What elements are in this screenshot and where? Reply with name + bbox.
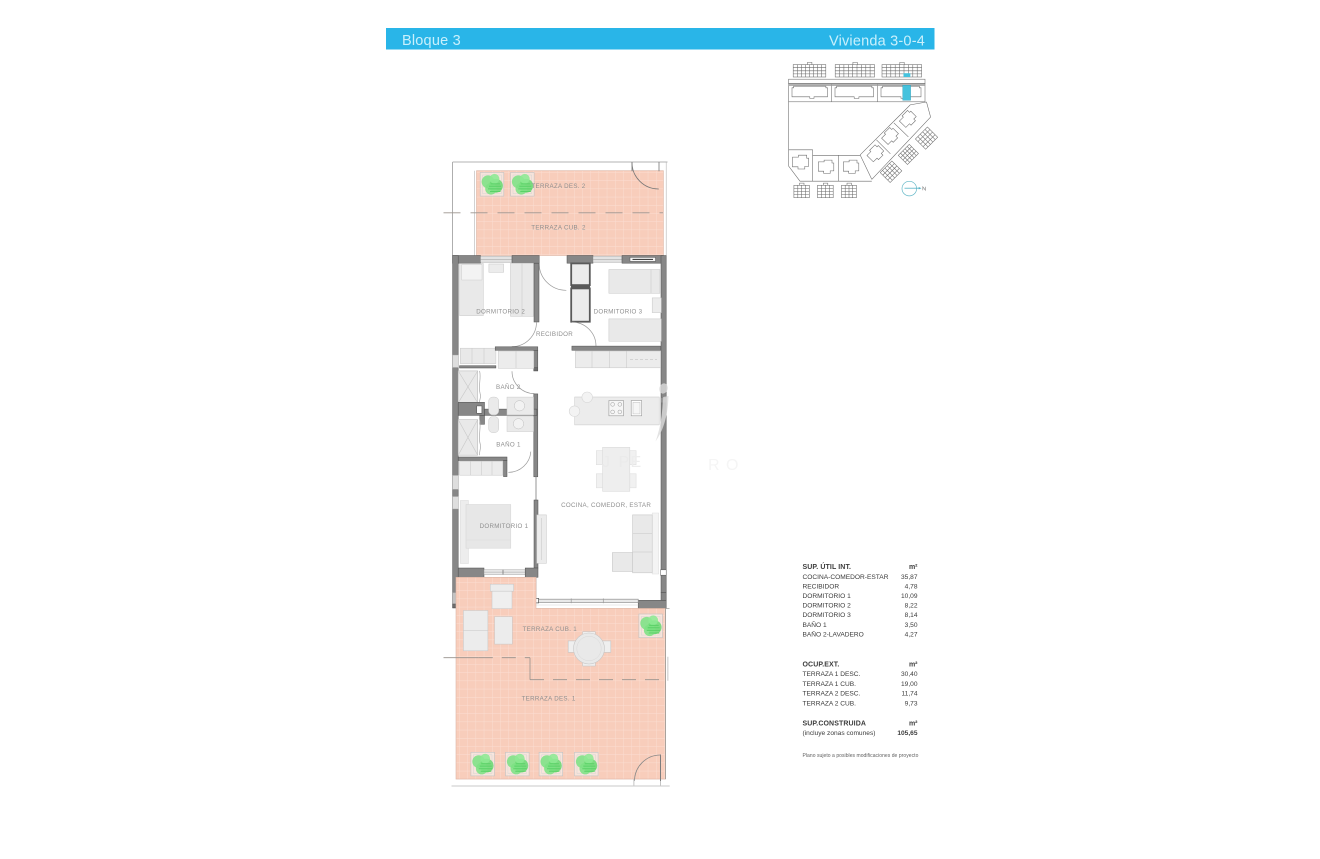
svg-text:E: E bbox=[631, 454, 642, 471]
svg-text:9,73: 9,73 bbox=[905, 701, 918, 708]
svg-text:TERRAZA 1 DESC.: TERRAZA 1 DESC. bbox=[803, 671, 861, 678]
svg-text:11,74: 11,74 bbox=[901, 691, 917, 698]
svg-text:COCINA, COMEDOR, ESTAR: COCINA, COMEDOR, ESTAR bbox=[561, 502, 651, 509]
svg-text:m²: m² bbox=[909, 720, 918, 727]
svg-text:BAÑO 2: BAÑO 2 bbox=[496, 384, 521, 391]
svg-text:TERRAZA CUB. 1: TERRAZA CUB. 1 bbox=[523, 626, 578, 633]
svg-text:SUP.CONSTRUIDA: SUP.CONSTRUIDA bbox=[803, 720, 867, 727]
svg-text:TERRAZA CUB. 2: TERRAZA CUB. 2 bbox=[531, 225, 586, 232]
svg-text:BAÑO 2-LAVADERO: BAÑO 2-LAVADERO bbox=[803, 629, 864, 638]
svg-text:3,50: 3,50 bbox=[905, 622, 918, 629]
svg-text:DORMITORIO 3: DORMITORIO 3 bbox=[594, 308, 643, 315]
svg-text:DORMITORIO 2: DORMITORIO 2 bbox=[476, 308, 525, 315]
svg-text:Bloque 3: Bloque 3 bbox=[402, 33, 461, 49]
svg-text:4,78: 4,78 bbox=[905, 583, 918, 590]
svg-text:105,65: 105,65 bbox=[897, 730, 918, 737]
svg-text:SUP. ÚTIL INT.: SUP. ÚTIL INT. bbox=[803, 562, 852, 571]
svg-text:COCINA-COMEDOR-ESTAR: COCINA-COMEDOR-ESTAR bbox=[803, 574, 889, 581]
svg-text:DORMITORIO 2: DORMITORIO 2 bbox=[803, 603, 852, 610]
svg-text:8,22: 8,22 bbox=[905, 603, 918, 610]
svg-text:DORMITORIO 1: DORMITORIO 1 bbox=[803, 593, 852, 600]
svg-text:Plano sujeto a posibles modifi: Plano sujeto a posibles modificaciones d… bbox=[803, 753, 919, 759]
svg-text:35,87: 35,87 bbox=[901, 574, 918, 581]
svg-text:BAÑO 1: BAÑO 1 bbox=[803, 620, 828, 629]
svg-text:8,14: 8,14 bbox=[905, 612, 918, 619]
svg-text:O: O bbox=[726, 457, 738, 474]
svg-text:RECIBIDOR: RECIBIDOR bbox=[803, 583, 840, 590]
svg-text:TERRAZA 1 CUB.: TERRAZA 1 CUB. bbox=[803, 681, 857, 688]
svg-text:R: R bbox=[708, 457, 720, 474]
svg-text:(incluye zonas comunes): (incluye zonas comunes) bbox=[803, 730, 876, 737]
svg-text:TERRAZA DES. 2: TERRAZA DES. 2 bbox=[531, 183, 585, 190]
svg-text:J: J bbox=[602, 454, 610, 471]
svg-text:DORMITORIO 3: DORMITORIO 3 bbox=[803, 612, 852, 619]
svg-text:m²: m² bbox=[909, 564, 918, 571]
svg-text:P: P bbox=[619, 454, 630, 471]
svg-text:19,00: 19,00 bbox=[901, 681, 918, 688]
svg-text:30,40: 30,40 bbox=[901, 671, 918, 678]
svg-text:m²: m² bbox=[909, 662, 918, 669]
svg-text:BAÑO 1: BAÑO 1 bbox=[496, 441, 521, 448]
svg-text:Vivienda 3-0-4: Vivienda 3-0-4 bbox=[829, 33, 925, 49]
svg-text:TERRAZA 2 CUB.: TERRAZA 2 CUB. bbox=[803, 701, 857, 708]
svg-text:4,27: 4,27 bbox=[905, 631, 918, 638]
svg-text:RECIBIDOR: RECIBIDOR bbox=[536, 331, 573, 338]
svg-text:TERRAZA 2 DESC.: TERRAZA 2 DESC. bbox=[803, 691, 861, 698]
svg-text:10,09: 10,09 bbox=[901, 593, 918, 600]
svg-text:DORMITORIO 1: DORMITORIO 1 bbox=[480, 523, 529, 530]
svg-text:TERRAZA DES. 1: TERRAZA DES. 1 bbox=[522, 696, 576, 703]
svg-text:OCUP.EXT.: OCUP.EXT. bbox=[803, 662, 840, 669]
